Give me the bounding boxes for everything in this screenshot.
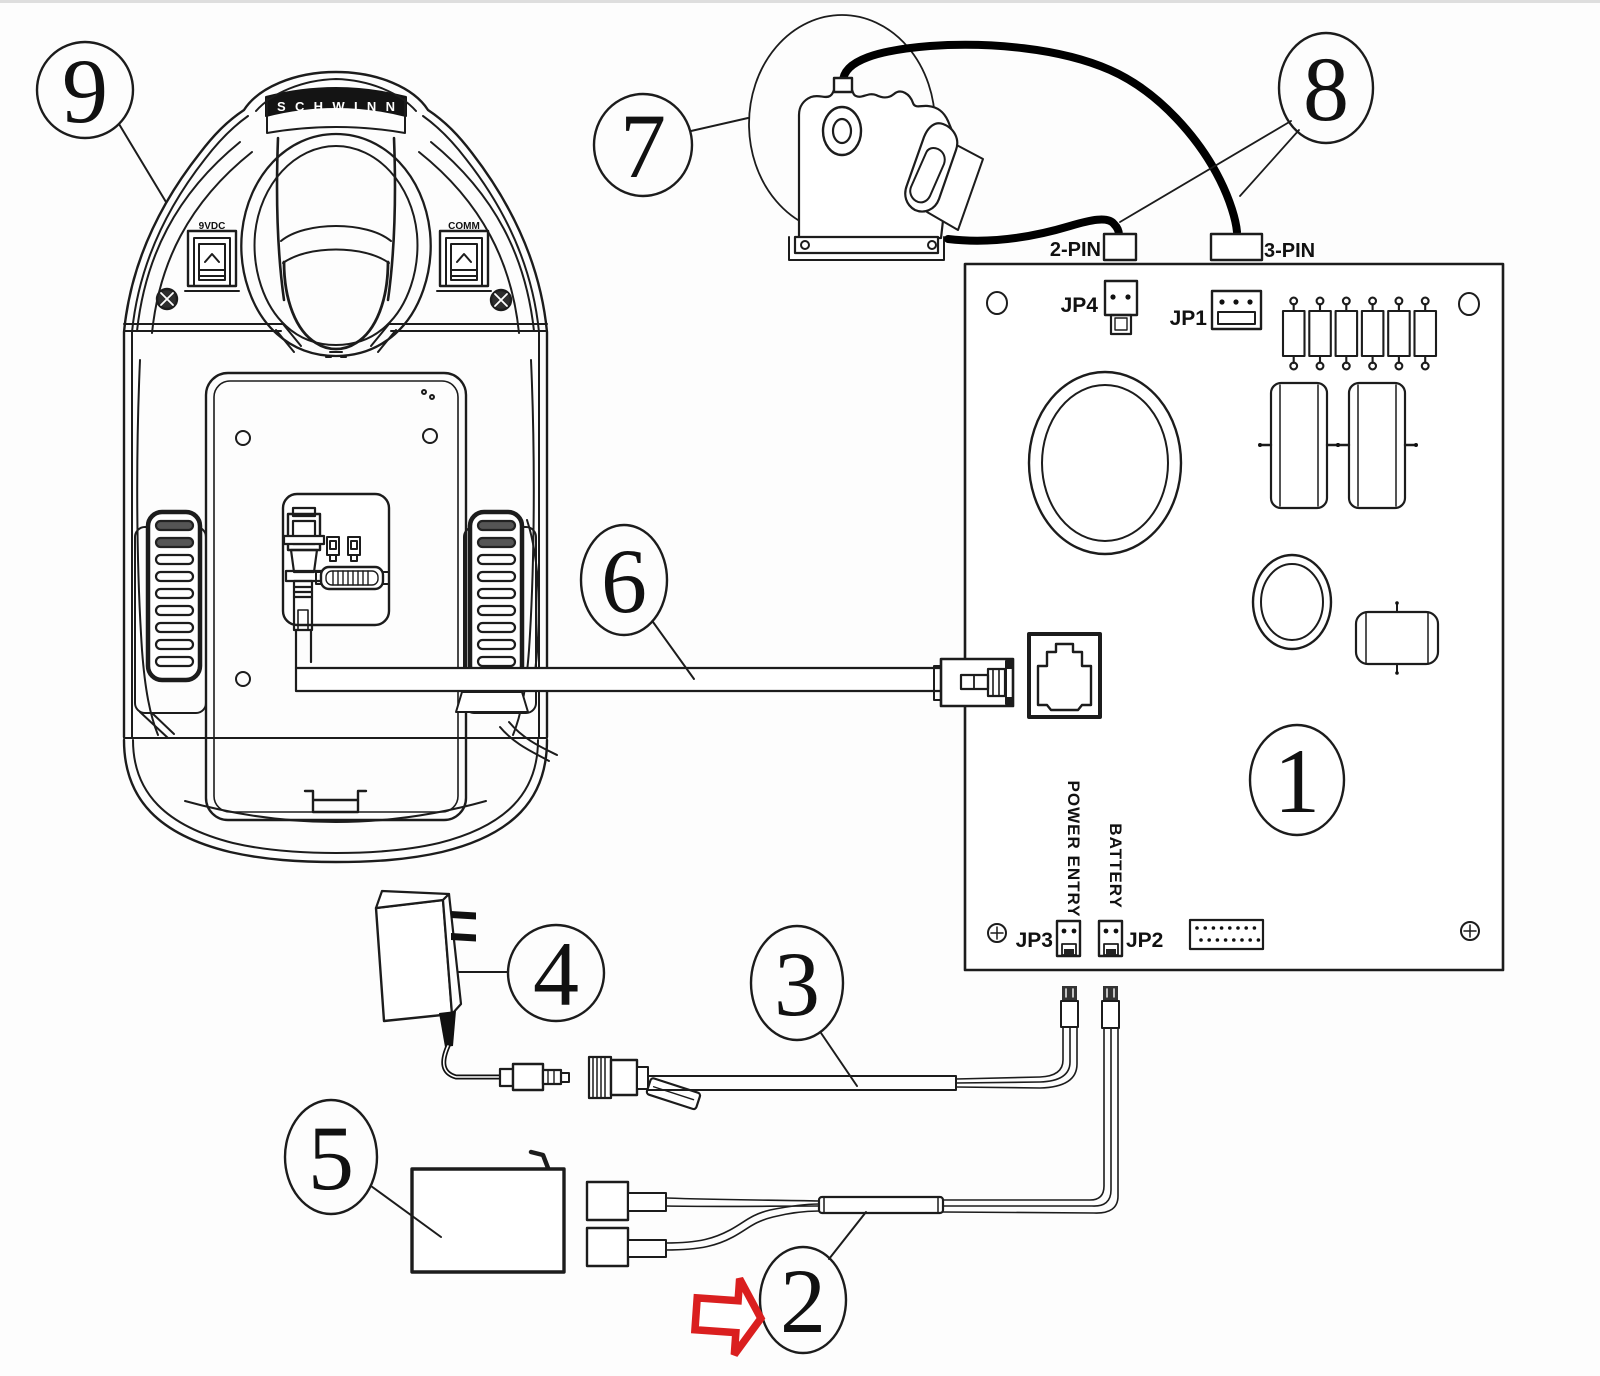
svg-text:JP2: JP2 <box>1126 929 1163 952</box>
svg-text:3-PIN: 3-PIN <box>1264 240 1315 262</box>
svg-text:9: 9 <box>62 40 108 142</box>
svg-text:JP3: JP3 <box>1016 929 1053 952</box>
svg-text:1: 1 <box>1274 730 1320 832</box>
svg-text:BATTERY: BATTERY <box>1106 823 1125 908</box>
svg-text:5: 5 <box>308 1107 354 1209</box>
svg-text:6: 6 <box>601 530 647 632</box>
svg-text:POWER ENTRY: POWER ENTRY <box>1064 781 1083 918</box>
svg-text:2-PIN: 2-PIN <box>1050 239 1101 261</box>
svg-text:3: 3 <box>774 933 820 1035</box>
svg-text:JP4: JP4 <box>1061 294 1099 317</box>
svg-text:2: 2 <box>780 1250 826 1352</box>
svg-text:8: 8 <box>1303 38 1349 140</box>
svg-text:7: 7 <box>620 95 666 197</box>
svg-text:4: 4 <box>533 923 579 1025</box>
svg-text:JP1: JP1 <box>1170 307 1208 330</box>
